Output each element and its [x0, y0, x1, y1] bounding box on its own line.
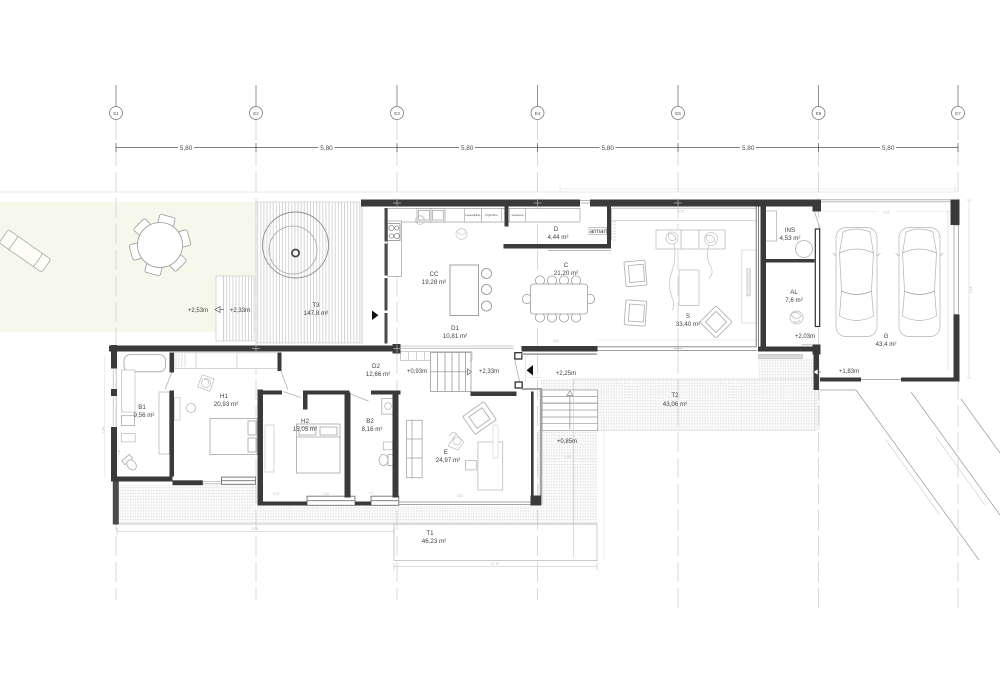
svg-text:T1: T1 [426, 530, 434, 537]
svg-text:H2: H2 [301, 418, 309, 425]
svg-text:armario: armario [590, 229, 611, 235]
svg-text:T3: T3 [312, 302, 320, 309]
svg-text:1,26: 1,26 [323, 492, 330, 496]
svg-text:7,6 m²: 7,6 m² [785, 297, 803, 304]
svg-text:frigorifico: frigorifico [485, 213, 498, 217]
svg-text:1,40: 1,40 [117, 449, 121, 456]
svg-text:9,56 m²: 9,56 m² [134, 412, 155, 419]
svg-text:43,4 m²: 43,4 m² [876, 341, 897, 348]
svg-text:E7: E7 [955, 111, 961, 116]
svg-text:8,35: 8,35 [252, 527, 259, 531]
svg-text:G: G [884, 333, 889, 340]
svg-text:5,44: 5,44 [969, 287, 973, 294]
svg-text:46,23 m²: 46,23 m² [422, 538, 446, 545]
svg-text:24,97 m²: 24,97 m² [436, 457, 460, 464]
svg-text:+2,03m: +2,03m [795, 334, 815, 340]
svg-text:S: S [686, 313, 690, 320]
svg-text:10,81 m²: 10,81 m² [443, 333, 467, 340]
svg-text:D1: D1 [451, 325, 459, 332]
svg-text:3,52: 3,52 [457, 494, 464, 498]
svg-text:E2: E2 [253, 111, 259, 116]
svg-text:5,80: 5,80 [320, 145, 333, 152]
svg-text:+1,83m: +1,83m [839, 369, 859, 375]
svg-text:+2,33m: +2,33m [230, 308, 250, 314]
svg-text:1,9: 1,9 [369, 491, 374, 495]
svg-text:5,53: 5,53 [883, 211, 890, 215]
svg-text:D2: D2 [372, 363, 380, 370]
svg-text:8,16 m²: 8,16 m² [362, 426, 383, 433]
svg-text:lavavajillas: lavavajillas [466, 213, 481, 217]
svg-text:E5: E5 [675, 111, 681, 116]
svg-text:2,28: 2,28 [565, 455, 572, 459]
svg-text:4,44 m²: 4,44 m² [548, 234, 569, 241]
svg-text:+2,53m: +2,53m [188, 308, 208, 314]
svg-text:12,66 m²: 12,66 m² [366, 371, 390, 378]
svg-text:5,25: 5,25 [678, 210, 685, 214]
svg-text:147,8 m²: 147,8 m² [304, 310, 328, 317]
svg-text:E6: E6 [816, 111, 822, 116]
svg-text:4,53 m²: 4,53 m² [780, 235, 801, 242]
svg-text:2,05: 2,05 [273, 492, 280, 496]
svg-text:E1: E1 [113, 111, 119, 116]
svg-text:AL: AL [790, 289, 798, 296]
svg-text:H1: H1 [220, 393, 228, 400]
svg-text:15,05 m²: 15,05 m² [293, 426, 317, 433]
svg-text:5,80: 5,80 [461, 145, 474, 152]
svg-text:C: C [564, 262, 569, 269]
svg-text:43,06 m²: 43,06 m² [663, 401, 687, 408]
svg-text:5,80: 5,80 [742, 145, 755, 152]
svg-text:+0,85m: +0,85m [557, 439, 577, 445]
svg-text:33,40 m²: 33,40 m² [676, 321, 700, 328]
svg-text:5,80: 5,80 [601, 145, 614, 152]
svg-text:E3: E3 [394, 111, 400, 116]
svg-text:21,20 m²: 21,20 m² [554, 270, 578, 277]
svg-text:19,28 m²: 19,28 m² [422, 279, 446, 286]
svg-text:E: E [444, 449, 448, 456]
svg-text:5,80: 5,80 [882, 145, 895, 152]
svg-text:INS: INS [785, 227, 795, 234]
svg-text:D: D [554, 226, 559, 233]
svg-text:B1: B1 [138, 404, 146, 411]
svg-text:5,51: 5,51 [553, 339, 560, 343]
svg-text:7,44: 7,44 [102, 427, 106, 434]
svg-text:20,93 m²: 20,93 m² [214, 401, 238, 408]
svg-text:5,80: 5,80 [180, 145, 193, 152]
svg-text:+2,33m: +2,33m [479, 369, 499, 375]
svg-text:T2: T2 [671, 392, 679, 399]
svg-text:E4: E4 [535, 111, 541, 116]
svg-text:+0,93m: +0,93m [407, 369, 427, 375]
svg-text:CC: CC [430, 271, 439, 278]
svg-text:+2,25m: +2,25m [556, 371, 576, 377]
svg-text:11,75: 11,75 [491, 562, 499, 566]
svg-text:lavadora: lavadora [512, 213, 524, 217]
svg-text:B2: B2 [366, 418, 374, 425]
